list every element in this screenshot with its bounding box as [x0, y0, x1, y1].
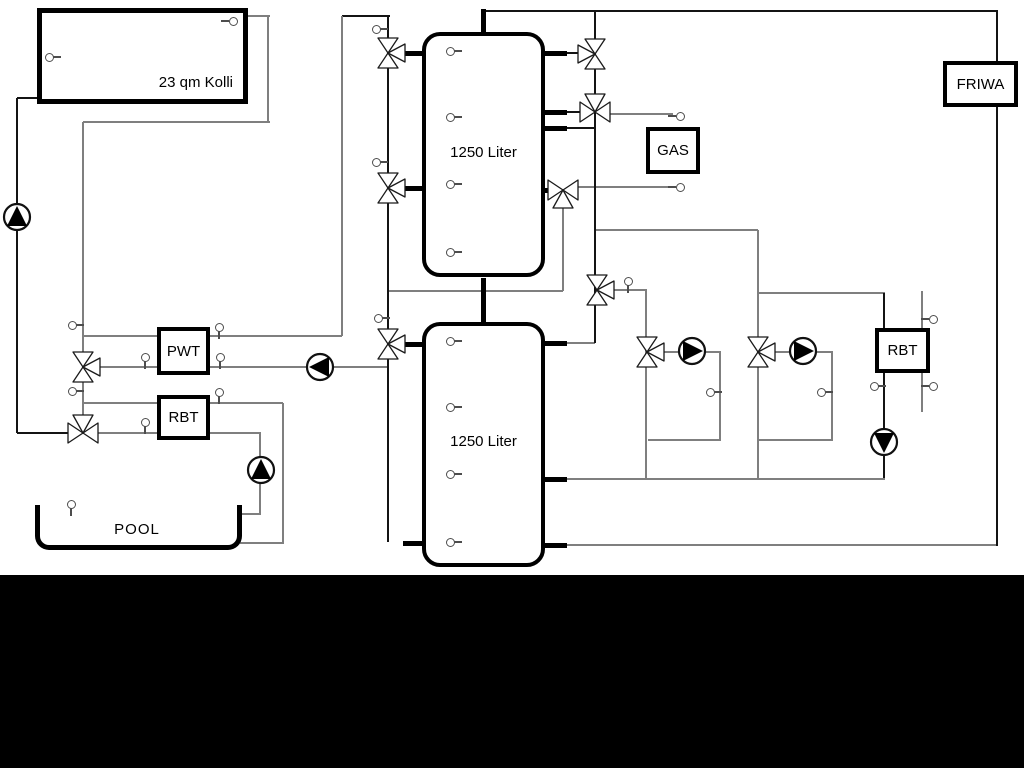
three-way-valve-icon: [579, 93, 611, 123]
pipe-line: [562, 202, 564, 291]
pump-icon: [677, 336, 707, 366]
sensor-stub: [454, 251, 462, 253]
pipe-line: [574, 186, 673, 188]
tank-port-stub: [481, 278, 486, 322]
three-way-valve-icon: [376, 328, 406, 360]
sensor-stub: [53, 56, 61, 58]
pipe-line: [267, 16, 269, 122]
tank-port-stub: [543, 110, 567, 115]
temperature-sensor-icon: [446, 180, 455, 189]
pipe-line: [17, 432, 71, 434]
pipe-line: [831, 352, 833, 440]
pipe-line: [341, 16, 343, 336]
pwt-heat-exchanger-box: PWT: [157, 327, 210, 375]
buffer-tank-lower-label: 1250 Liter: [422, 433, 545, 450]
pipe-line: [82, 122, 84, 433]
sensor-stub: [76, 390, 84, 392]
pump-icon: [869, 427, 899, 457]
pipe-line: [17, 97, 38, 99]
temperature-sensor-icon: [68, 321, 77, 330]
sensor-stub: [454, 473, 462, 475]
temperature-sensor-icon: [676, 112, 685, 121]
pipe-line: [648, 439, 721, 441]
tank-port-stub: [543, 477, 567, 482]
pipe-line: [719, 352, 721, 440]
temperature-sensor-icon: [45, 53, 54, 62]
pipe-line: [759, 439, 833, 441]
temperature-sensor-icon: [67, 500, 76, 509]
sensor-stub: [380, 28, 388, 30]
pool-label: POOL: [37, 521, 237, 538]
temperature-sensor-icon: [446, 470, 455, 479]
three-way-valve-icon: [376, 172, 406, 204]
solar-collector-label: 23 qm Kolli: [37, 74, 233, 91]
sensor-stub: [382, 317, 390, 319]
pipe-line: [387, 16, 389, 542]
temperature-sensor-icon: [141, 353, 150, 362]
temperature-sensor-icon: [215, 388, 224, 397]
sensor-stub: [668, 115, 676, 117]
pipe-line: [282, 403, 284, 543]
sensor-stub: [454, 541, 462, 543]
sensor-stub: [144, 361, 146, 369]
sensor-stub: [218, 331, 220, 339]
sensor-stub: [921, 318, 929, 320]
tank-port-stub: [543, 51, 567, 56]
pipe-line: [95, 366, 388, 368]
temperature-sensor-icon: [68, 387, 77, 396]
sensor-stub: [627, 285, 629, 293]
pipe-line: [566, 544, 997, 546]
temperature-sensor-icon: [706, 388, 715, 397]
buffer-tank-upper-label: 1250 Liter: [422, 144, 545, 161]
temperature-sensor-icon: [374, 314, 383, 323]
sensor-stub: [70, 508, 72, 516]
pipe-line: [342, 15, 390, 17]
pump-icon: [305, 352, 335, 382]
tank-port-stub: [543, 341, 567, 346]
tank-port-stub: [403, 541, 424, 546]
temperature-sensor-icon: [624, 277, 633, 286]
pipe-line: [83, 121, 270, 123]
sensor-stub: [454, 406, 462, 408]
three-way-valve-icon: [547, 179, 579, 209]
temperature-sensor-icon: [446, 337, 455, 346]
temperature-sensor-icon: [446, 113, 455, 122]
sensor-stub: [668, 186, 676, 188]
rbt-left-box: RBT: [157, 395, 210, 440]
three-way-valve-icon: [585, 274, 615, 306]
temperature-sensor-icon: [929, 382, 938, 391]
temperature-sensor-icon: [870, 382, 879, 391]
pipe-line: [16, 98, 18, 433]
three-way-valve-icon: [376, 37, 406, 69]
temperature-sensor-icon: [216, 353, 225, 362]
sensor-stub: [921, 385, 929, 387]
sensor-stub: [380, 161, 388, 163]
pipe-line: [567, 342, 595, 344]
temperature-sensor-icon: [446, 47, 455, 56]
sensor-stub: [221, 20, 229, 22]
temperature-sensor-icon: [446, 248, 455, 257]
sensor-stub: [878, 385, 886, 387]
sensor-stub: [454, 183, 462, 185]
bottom-black-band: [0, 575, 1024, 768]
friwa-box: FRIWA: [943, 61, 1018, 107]
pipe-line: [483, 10, 998, 12]
temperature-sensor-icon: [215, 323, 224, 332]
tank-port-stub: [481, 9, 486, 32]
sensor-stub: [76, 324, 84, 326]
pipe-line: [566, 478, 885, 480]
temperature-sensor-icon: [372, 25, 381, 34]
pipe-line: [83, 335, 342, 337]
sensor-stub: [714, 391, 722, 393]
sensor-stub: [144, 426, 146, 434]
hydraulic-schematic: 23 qm Kolli 1250 Liter 1250 Liter GAS FR…: [0, 0, 1024, 768]
three-way-valve-icon: [635, 336, 665, 368]
pipe-line: [240, 542, 284, 544]
temperature-sensor-icon: [676, 183, 685, 192]
temperature-sensor-icon: [929, 315, 938, 324]
three-way-valve-icon: [71, 351, 101, 383]
gas-boiler-box: GAS: [646, 127, 700, 174]
rbt-right-box: RBT: [875, 328, 930, 373]
pump-icon: [246, 455, 276, 485]
temperature-sensor-icon: [817, 388, 826, 397]
temperature-sensor-icon: [229, 17, 238, 26]
pipe-line: [595, 229, 758, 231]
sensor-stub: [218, 396, 220, 404]
pump-icon: [2, 202, 32, 232]
three-way-valve-icon: [577, 38, 607, 70]
pipe-line: [388, 290, 563, 292]
temperature-sensor-icon: [372, 158, 381, 167]
sensor-stub: [454, 340, 462, 342]
tank-port-stub: [543, 543, 567, 548]
pipe-line: [758, 292, 885, 294]
sensor-stub: [454, 50, 462, 52]
sensor-stub: [825, 391, 833, 393]
temperature-sensor-icon: [446, 403, 455, 412]
pump-icon: [788, 336, 818, 366]
sensor-stub: [219, 361, 221, 369]
sensor-stub: [454, 116, 462, 118]
three-way-valve-icon: [746, 336, 776, 368]
pipe-line: [607, 113, 673, 115]
temperature-sensor-icon: [141, 418, 150, 427]
three-way-valve-icon: [67, 414, 99, 444]
temperature-sensor-icon: [446, 538, 455, 547]
pipe-line: [645, 290, 647, 479]
tank-port-stub: [543, 126, 567, 131]
